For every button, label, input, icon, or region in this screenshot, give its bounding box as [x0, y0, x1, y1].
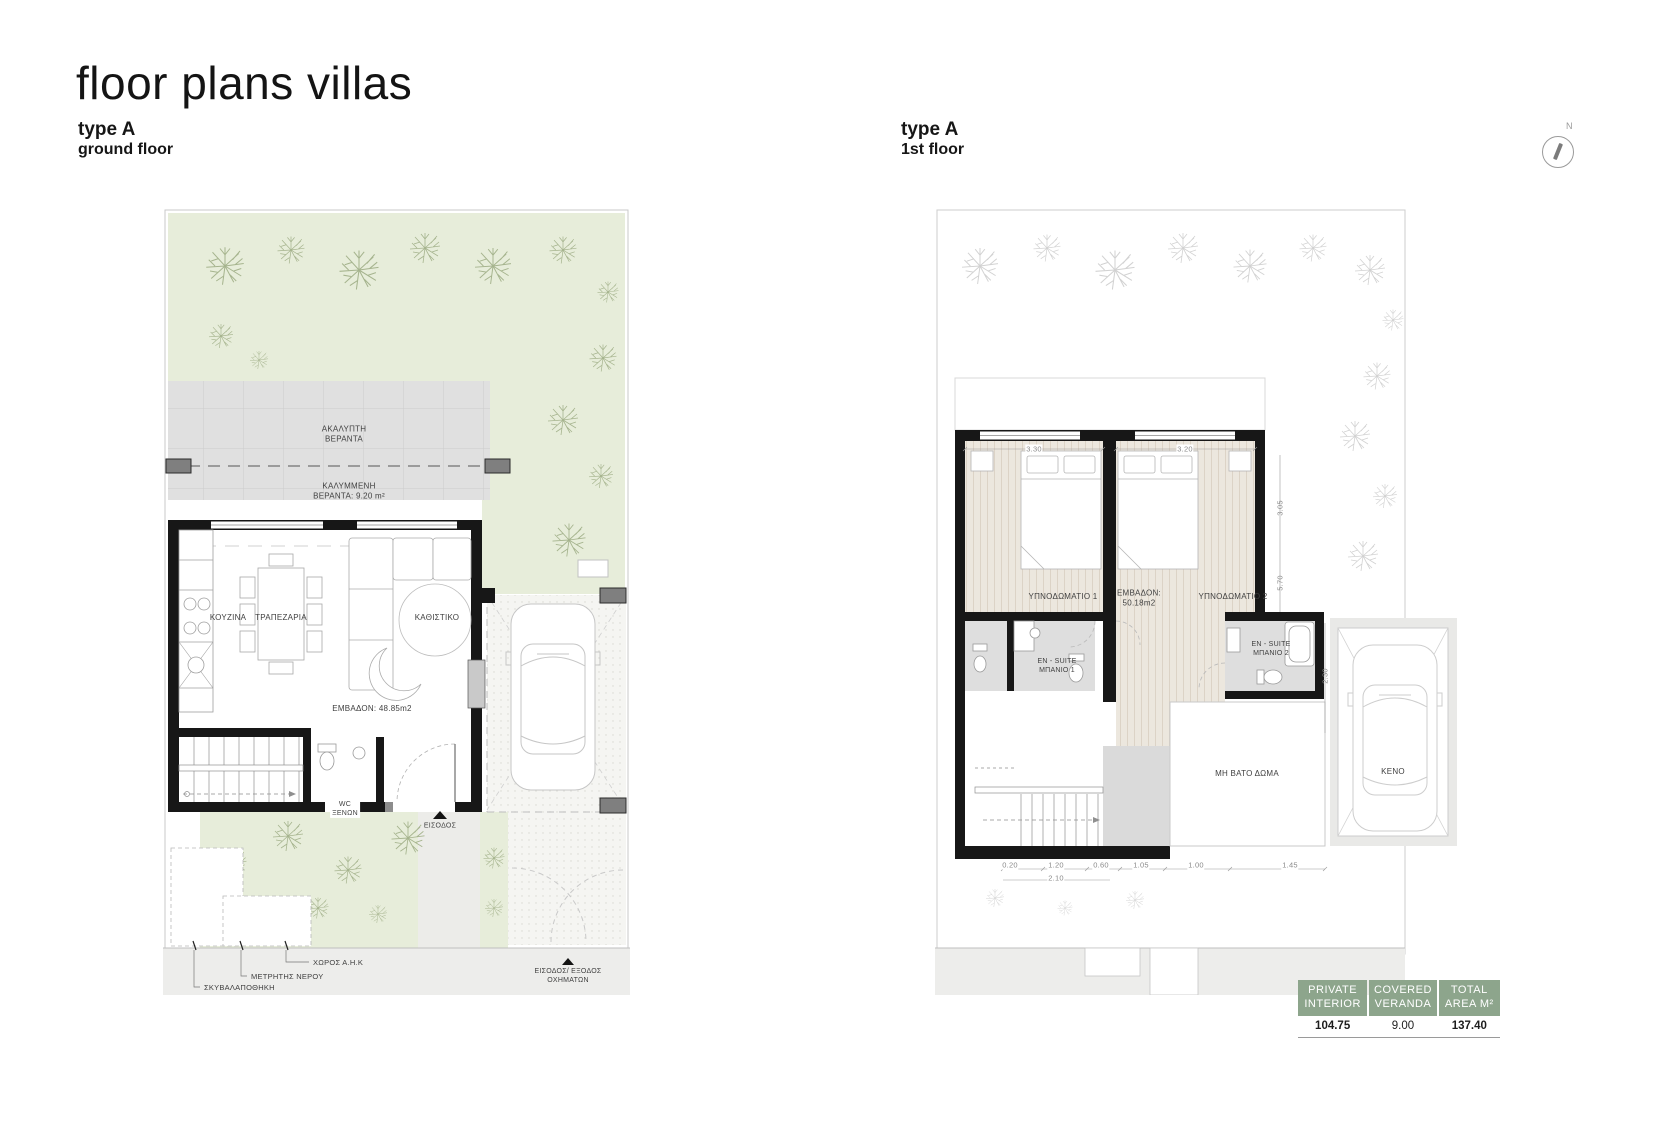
- garage-void: [1330, 618, 1457, 846]
- kitchen-label: ΚΟΥΖΙΝΑ: [210, 613, 246, 623]
- stairwell-void: [1103, 746, 1170, 846]
- roof-label: ΜΗ ΒΑΤΟ ΔΩΜΑ: [1215, 769, 1279, 779]
- vehicle-access-label: ΕΙΣΟΔΟΣ/ ΕΞΟΔΟΣ ΟΧΗΜΑΤΩΝ: [535, 967, 602, 985]
- ground-floor-level-label: ground floor: [78, 141, 173, 160]
- ensuite1-label: EN - SUITE ΜΠΑΝΙΟ 1: [1037, 657, 1076, 675]
- floor-plan-sheet: floor plans villas type A ground floor t…: [0, 0, 1663, 1134]
- dining-label: ΤΡΑΠΕΖΑΡΙΑ: [255, 613, 307, 623]
- first-floor-type-label: type A: [901, 119, 964, 141]
- wc-label: WC ΞΕΝΩΝ: [330, 800, 360, 818]
- bedroom2-label: ΥΠΝΟΔΩΜΑΤΙΟ 2: [1199, 592, 1268, 602]
- ground-floor-drawing: [163, 208, 630, 995]
- ensuite2-label: EN - SUITE ΜΠΑΝΙΟ 2: [1251, 640, 1290, 658]
- compass-north-label: N: [1566, 121, 1573, 131]
- covered-veranda-header: COVERED VERANDA: [1369, 980, 1436, 1016]
- first-floor-subtitle: type A 1st floor: [901, 119, 964, 160]
- private-interior-header: PRIVATE INTERIOR: [1298, 980, 1367, 1016]
- first-area-label: ΕΜΒΑΔΟΝ: 50.18m2: [1117, 589, 1161, 610]
- private-interior-value: 104.75: [1298, 1020, 1367, 1032]
- kitchen-counter: [179, 530, 213, 712]
- bedroom1-label: ΥΠΝΟΔΩΜΑΤΙΟ 1: [1029, 592, 1098, 602]
- ahk-label: ΧΩΡΟΣ Α.Η.Κ: [313, 958, 363, 968]
- north-compass-icon: N: [1542, 136, 1574, 168]
- first-floor-plan: ΥΠΝΟΔΩΜΑΤΙΟ 1 ΕΜΒΑΔΟΝ: 50.18m2 ΥΠΝΟΔΩΜΑΤ…: [935, 208, 1465, 995]
- ground-area-label: ΕΜΒΑΔΟΝ: 48.85m2: [332, 704, 411, 714]
- water-meter-label: ΜΕΤΡΗΤΗΣ ΝΕΡΟΥ: [251, 972, 323, 982]
- dim-bottom-1: 0.20: [1001, 861, 1018, 870]
- dim-bottom-5: 1.00: [1187, 861, 1204, 870]
- ground-floor-type-label: type A: [78, 119, 173, 141]
- dim-top-2: 3.20: [1176, 445, 1193, 454]
- garbage-store-label: ΣΚΥΒΑΛΑΠΟΘΗΚΗ: [204, 983, 275, 993]
- total-area-header: TOTAL AREA M²: [1439, 980, 1500, 1016]
- total-area-value: 137.40: [1439, 1020, 1500, 1032]
- dim-right-2: 5.70: [1276, 574, 1285, 591]
- dim-top-1: 3.30: [1025, 445, 1042, 454]
- areas-table-header-row: PRIVATE INTERIOR COVERED VERANDA TOTAL A…: [1298, 980, 1500, 1016]
- entrance-label: ΕΙΣΟΔΟΣ: [424, 821, 456, 830]
- first-floor-level-label: 1st floor: [901, 141, 964, 160]
- ground-floor-plan: ΑΚΑΛΥΠΤΗ ΒΕΡΑΝΤΑ ΚΑΛΥΜΜΕΝΗ ΒΕΡΑΝΤΑ: 9.20…: [163, 208, 630, 995]
- dim-bottom-2: 1.20: [1047, 861, 1064, 870]
- dim-bottom-6: 1.45: [1281, 861, 1298, 870]
- page-title: floor plans villas: [76, 58, 412, 109]
- vehicle-entrance-arrow-icon: [562, 958, 574, 965]
- dim-bottom-4: 1.05: [1132, 861, 1149, 870]
- covered-veranda-label: ΚΑΛΥΜΜΕΝΗ ΒΕΡΑΝΤΑ: 9.20 m²: [313, 482, 385, 503]
- dim-right-3: 2.30: [1321, 667, 1330, 684]
- parked-car: [506, 604, 600, 790]
- dim-right-1: 3.05: [1276, 499, 1285, 516]
- covered-veranda-value: 9.00: [1369, 1020, 1436, 1032]
- areas-table-value-row: 104.75 9.00 137.40: [1298, 1016, 1500, 1038]
- open-veranda-label: ΑΚΑΛΥΠΤΗ ΒΕΡΑΝΤΑ: [322, 425, 367, 446]
- ground-floor-subtitle: type A ground floor: [78, 119, 173, 160]
- living-label: ΚΑΘΙΣΤΙΚΟ: [415, 613, 460, 623]
- void-label: ΚΕΝΟ: [1381, 767, 1405, 777]
- dim-bottom-total: 2.10: [1047, 874, 1064, 883]
- entrance-arrow-icon: [433, 811, 447, 819]
- areas-table: PRIVATE INTERIOR COVERED VERANDA TOTAL A…: [1298, 980, 1500, 1038]
- dim-bottom-3: 0.60: [1092, 861, 1109, 870]
